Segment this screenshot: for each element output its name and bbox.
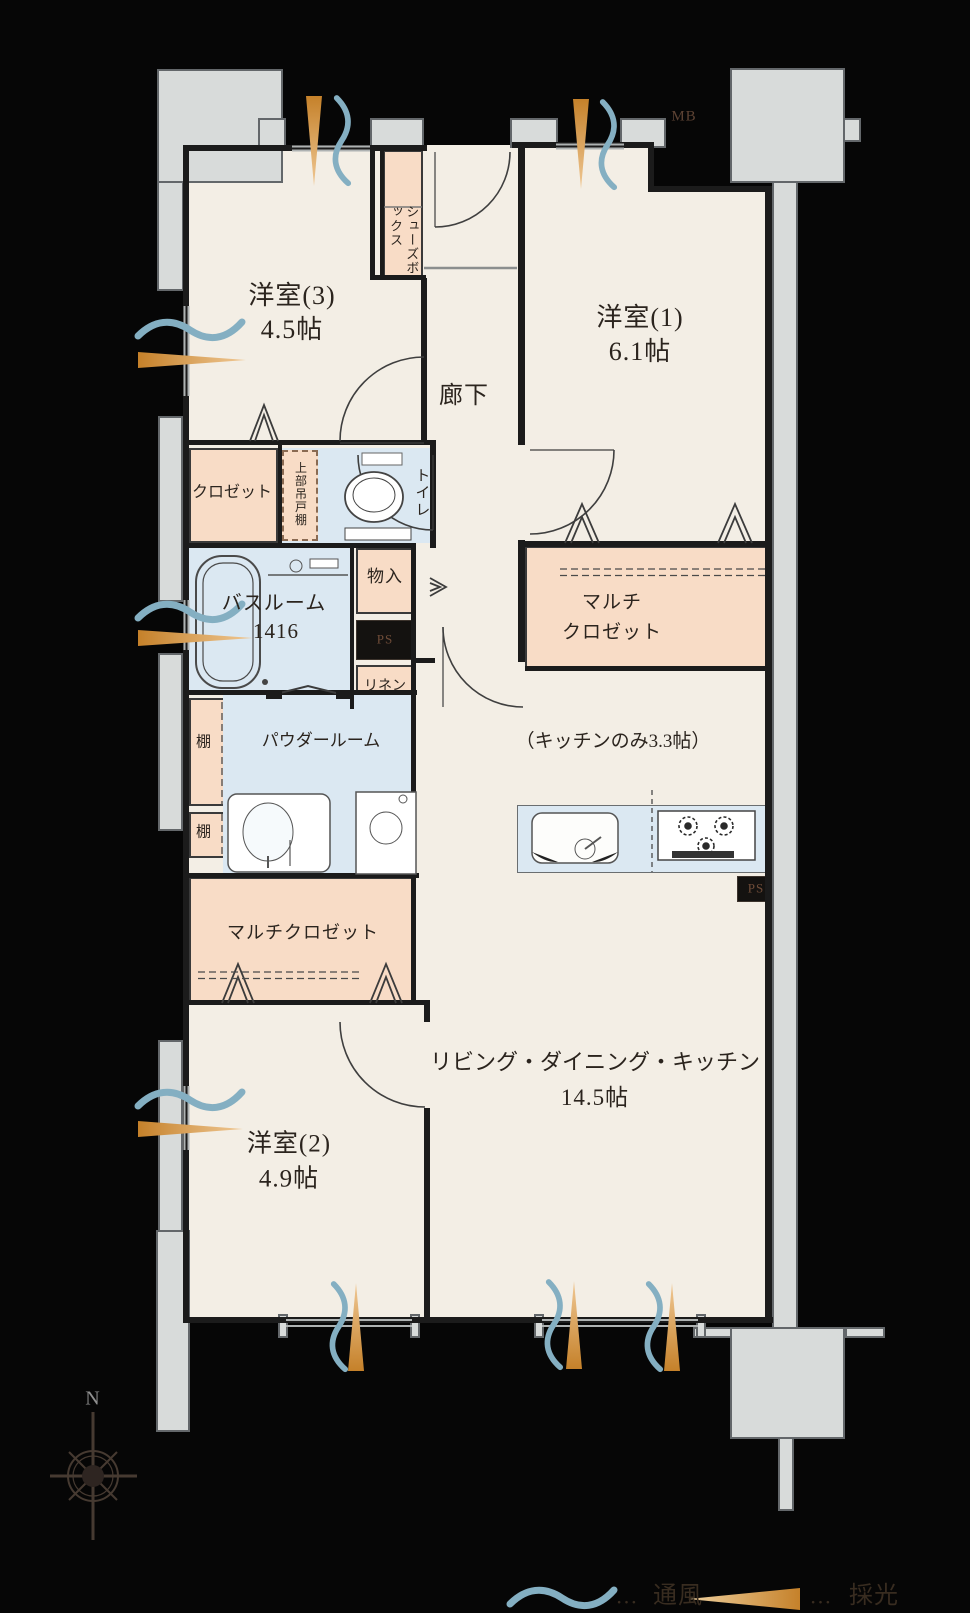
wall <box>183 1000 429 1005</box>
wall <box>183 873 419 878</box>
wall <box>278 443 282 543</box>
wall <box>183 1317 773 1323</box>
bathroom-size-label: 1416 <box>253 619 299 643</box>
wall <box>648 142 654 192</box>
exterior-column-left <box>157 181 184 291</box>
linen-label: リネン <box>364 679 406 695</box>
multi-closet-right-label-2: クロゼット <box>562 622 662 644</box>
powder-room <box>223 693 413 877</box>
stair-arm <box>845 1327 885 1338</box>
room-label-western2: 洋室(2) <box>247 1131 331 1160</box>
pipe-space-label-2: PS <box>748 882 764 897</box>
kitchen-counter <box>517 805 770 873</box>
compass-icon <box>50 1412 137 1540</box>
window-sash-top-1 <box>258 118 286 148</box>
legend-dots-2: … <box>810 1583 833 1608</box>
room-size-western2: 4.9帖 <box>259 1166 319 1195</box>
bathroom-label: バスルーム <box>222 593 326 616</box>
meter-box-label: MB <box>671 108 696 125</box>
window-sash-mb <box>843 118 861 142</box>
legend-dots-1: … <box>616 1583 639 1608</box>
wall <box>411 543 416 709</box>
pipe-space-label-1: PS <box>377 633 393 648</box>
shelf-label-1: 棚 <box>196 734 212 751</box>
wall <box>183 145 427 151</box>
wall <box>518 540 525 662</box>
room-size-western3: 4.5帖 <box>261 315 324 345</box>
wall <box>421 278 427 445</box>
wall <box>518 145 525 445</box>
shelf-box-1 <box>189 698 223 806</box>
wall <box>411 877 416 1004</box>
closet-label: クロゼット <box>192 484 272 502</box>
shelf-label-2: 棚 <box>196 824 212 841</box>
floor-plan: 洋室(3) 4.5帖 洋室(1) 6.1帖 廊下 シューズボックス クロゼット … <box>0 0 970 1613</box>
room-label-western3: 洋室(3) <box>248 281 335 311</box>
balcony-block-top-right <box>730 68 845 183</box>
exterior-strip-left-1 <box>158 416 183 602</box>
hallway-label: 廊下 <box>439 383 489 411</box>
stair-stem <box>778 1437 794 1511</box>
legend-daylight-label: 採光 <box>849 1583 899 1611</box>
exterior-strip-left-3 <box>158 1040 183 1232</box>
room-size-western1: 6.1帖 <box>609 337 672 367</box>
wall <box>512 142 654 148</box>
stair-block-bottom-right <box>730 1327 845 1439</box>
wall <box>525 541 772 547</box>
wall <box>413 658 435 663</box>
compass-north-label: N <box>85 1388 100 1411</box>
toilet-label: トイレ <box>412 468 431 519</box>
legend-daylight-swatch <box>688 1588 800 1610</box>
ldk-size-label: 14.5帖 <box>561 1085 629 1111</box>
legend-vent-swatch <box>510 1590 614 1606</box>
wall <box>430 440 436 548</box>
kitchen-note-label: （キッチンのみ3.3帖） <box>516 731 711 753</box>
wall <box>350 543 354 709</box>
multi-closet-left-label: マルチクロゼット <box>227 923 379 944</box>
wall <box>424 1108 430 1323</box>
legend-ventilation-label: 通風 <box>653 1583 703 1611</box>
powder-room-label: パウダールーム <box>262 731 381 751</box>
upper-cabinet-label: 上部吊戸棚 <box>293 462 308 527</box>
wall <box>183 440 435 445</box>
multi-closet-right-label-1: マルチ <box>582 592 642 614</box>
multi-closet-right-box <box>525 546 770 670</box>
wall <box>370 145 375 279</box>
wall <box>424 1000 430 1022</box>
wall <box>380 145 384 280</box>
storage-label: 物入 <box>367 567 403 587</box>
wall <box>183 145 189 1323</box>
exterior-strip-left-2 <box>158 653 183 831</box>
wall <box>183 543 415 548</box>
wall <box>765 188 772 1323</box>
wall <box>650 186 772 192</box>
corridor-strip-right <box>772 181 798 1331</box>
wall <box>411 693 416 877</box>
room-label-western1: 洋室(1) <box>596 303 683 333</box>
wall <box>525 666 772 671</box>
shoes-box-label: シューズボックス <box>387 205 420 281</box>
ldk-label: リビング・ダイニング・キッチン <box>430 1049 760 1074</box>
